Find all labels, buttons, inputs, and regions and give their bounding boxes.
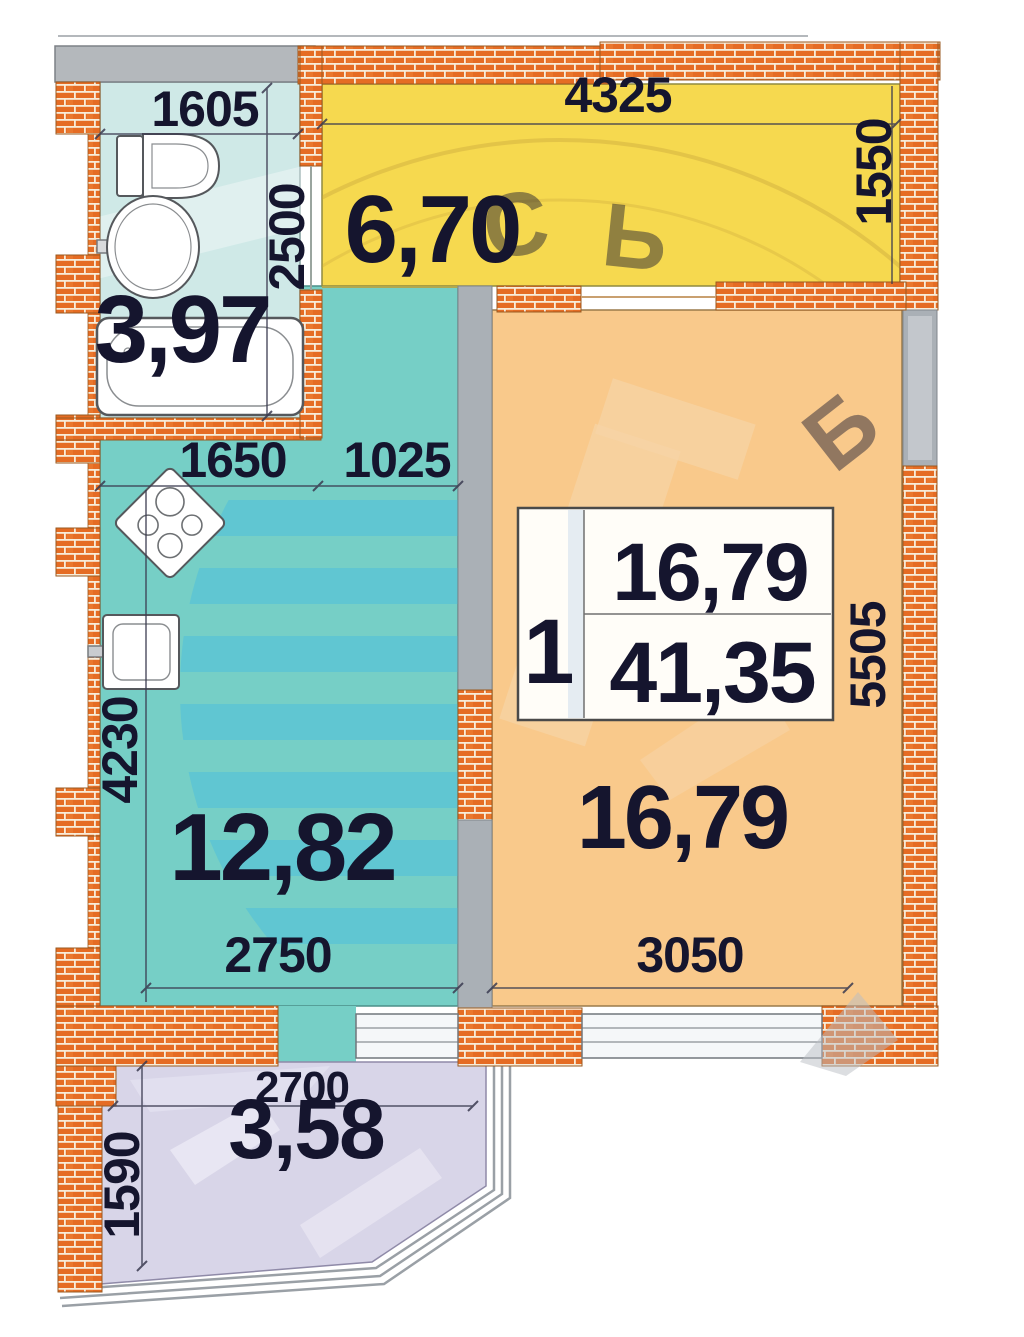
living-height-dim: 5505 [840, 601, 896, 708]
left-wall-pier [56, 82, 100, 134]
balcony-area-label: 3,58 [228, 1082, 384, 1176]
kitchen-bottom-dim: 2750 [224, 927, 331, 983]
bathroom-right-wall-upper [300, 46, 322, 166]
hallway-bottom-wall-left [497, 286, 581, 312]
hallway-bottom-wall-right [716, 282, 906, 310]
floor-plan-page: С Ь Б 1 16,79 41,35 1605 2500 3,97 4325 … [0, 0, 1024, 1337]
left-wall-pier [56, 528, 100, 576]
living-area-label: 16,79 [577, 768, 787, 868]
kitchen-top-right-dim: 1025 [343, 432, 450, 488]
left-wall-pier [56, 948, 100, 1006]
info-living-area: 16,79 [612, 527, 807, 618]
watermark-letter-2: Ь [598, 185, 673, 291]
right-wall-lower [903, 466, 937, 1066]
balcony-door-opening [278, 1006, 356, 1064]
unit-info-box: 1 16,79 41,35 [518, 508, 833, 721]
hallway-width-dim: 4325 [564, 67, 671, 123]
right-wall-window-inner [908, 316, 932, 460]
kitchen-height-dim: 4230 [92, 696, 148, 803]
bathroom-height-dim: 2500 [259, 183, 315, 290]
bottom-wall-middle-brick [458, 1008, 582, 1066]
bottom-wall-left-block [56, 1006, 278, 1066]
balcony-left-wall-step [56, 1066, 116, 1106]
hallway-area-label: 6,70 [345, 176, 520, 283]
divider-wall-gray-upper [458, 286, 492, 690]
right-wall-upper [900, 42, 938, 310]
divider-wall-gray-lower [458, 820, 492, 1008]
toilet [117, 134, 219, 198]
kitchen-balcony-window [356, 1014, 458, 1058]
divider-wall-brick [458, 690, 492, 820]
bathroom-width-dim: 1605 [151, 81, 258, 137]
balcony-height-dim: 1590 [94, 1131, 150, 1238]
living-bottom-dim: 3050 [636, 927, 743, 983]
kitchen-top-left-dim: 1650 [179, 432, 286, 488]
hallway-height-dim: 1550 [846, 118, 902, 225]
living-window [582, 1014, 822, 1058]
floor-plan-drawing: С Ь Б 1 16,79 41,35 1605 2500 3,97 4325 … [0, 0, 1024, 1337]
bathroom-area-label: 3,97 [95, 276, 270, 383]
top-wall-brick-left [298, 46, 610, 84]
entrance-slab-wall [55, 46, 315, 82]
info-rooms-count: 1 [523, 601, 574, 703]
left-wall-pier [56, 255, 100, 313]
info-total-area: 41,35 [609, 625, 814, 721]
kitchen-area-label: 12,82 [169, 794, 394, 901]
